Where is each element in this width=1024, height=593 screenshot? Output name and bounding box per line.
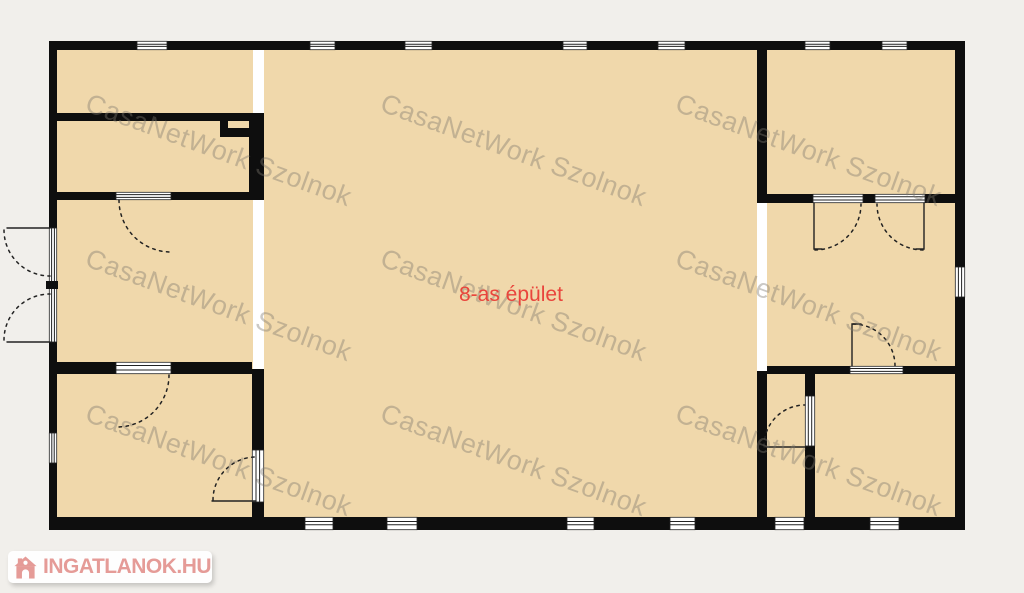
floorplan-image: CasaNetWork Szolnok CasaNetWork Szolnok … xyxy=(0,0,1024,593)
window xyxy=(882,41,907,49)
wall xyxy=(252,502,264,517)
wall xyxy=(863,194,875,203)
wall xyxy=(757,41,767,198)
house-icon xyxy=(14,556,37,579)
wall xyxy=(220,121,228,137)
site-logo-text: INGATLANOK.HU xyxy=(43,555,211,579)
wall xyxy=(757,194,813,203)
door-arc xyxy=(4,230,50,276)
double-door xyxy=(46,228,58,342)
door xyxy=(252,450,263,502)
site-logo: INGATLANOK.HU xyxy=(8,551,212,583)
window xyxy=(405,41,432,49)
wall xyxy=(228,128,249,137)
wall xyxy=(57,362,116,374)
window xyxy=(775,517,804,529)
door xyxy=(813,194,863,202)
window xyxy=(567,517,594,529)
wall xyxy=(57,113,253,121)
wall xyxy=(249,113,264,200)
window xyxy=(870,517,899,529)
window xyxy=(670,517,695,529)
window xyxy=(658,41,685,49)
building-label: 8-as épület xyxy=(459,283,563,307)
gap-left-upper xyxy=(253,50,264,113)
gap-right-mid xyxy=(757,198,767,371)
door xyxy=(805,396,814,446)
window xyxy=(563,41,587,49)
wall xyxy=(903,366,955,374)
door xyxy=(850,366,903,373)
wall xyxy=(757,371,767,517)
window xyxy=(805,41,830,49)
wall xyxy=(252,369,264,450)
wall xyxy=(805,374,815,396)
wall xyxy=(49,517,965,530)
wall xyxy=(805,446,815,517)
wall xyxy=(171,192,249,200)
door-arc xyxy=(4,294,50,340)
window xyxy=(305,517,333,529)
wall xyxy=(57,192,116,200)
window xyxy=(49,433,56,463)
window xyxy=(310,41,335,49)
wall xyxy=(171,362,252,374)
wall xyxy=(767,366,850,374)
window xyxy=(137,41,167,49)
door xyxy=(875,194,925,202)
door xyxy=(116,192,171,199)
gap-left-mid xyxy=(253,200,264,369)
door xyxy=(116,362,171,373)
wall xyxy=(925,194,955,203)
window xyxy=(955,267,964,297)
window xyxy=(387,517,417,529)
